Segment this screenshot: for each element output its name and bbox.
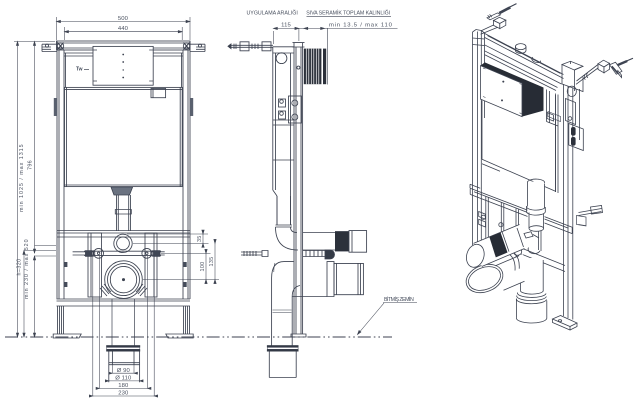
svg-text:180: 180 — [118, 383, 129, 389]
svg-text:35: 35 — [197, 235, 203, 242]
svg-text:135: 135 — [209, 256, 215, 266]
svg-text:Tw: Tw — [76, 67, 83, 73]
svg-text:115: 115 — [281, 22, 291, 28]
svg-text:min 1025 / max 1315: min 1025 / max 1315 — [19, 144, 25, 212]
svg-text:min 230 / max 520: min 230 / max 520 — [24, 239, 30, 299]
svg-text:UYGULAMA ARALIĞI: UYGULAMA ARALIĞI — [247, 10, 299, 17]
svg-text:min 13.5 / max 110: min 13.5 / max 110 — [329, 23, 393, 29]
svg-text:Ø 90: Ø 90 — [117, 368, 131, 374]
svg-text:500: 500 — [118, 16, 129, 22]
svg-text:SIVA SERAMİK TOPLAM KALINLIĞI: SIVA SERAMİK TOPLAM KALINLIĞI — [306, 10, 390, 17]
svg-text:BİTMİŞ ZEMİN: BİTMİŞ ZEMİN — [384, 296, 414, 303]
svg-text:100: 100 — [200, 261, 206, 271]
svg-text:h=320: h=320 — [17, 259, 23, 276]
svg-text:230: 230 — [118, 391, 129, 397]
svg-text:440: 440 — [118, 26, 129, 32]
svg-text:Ø 110: Ø 110 — [115, 376, 132, 382]
svg-text:796: 796 — [28, 160, 34, 170]
